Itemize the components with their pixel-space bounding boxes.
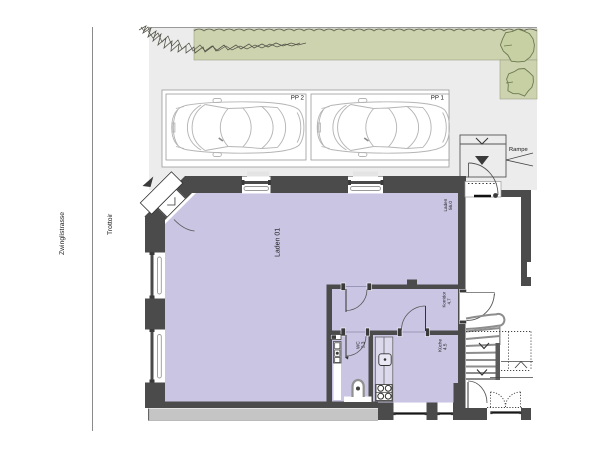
svg-text:4.7: 4.7 <box>447 298 452 305</box>
svg-text:Rampe: Rampe <box>509 147 528 153</box>
svg-text:4.5: 4.5 <box>443 343 448 350</box>
svg-text:PP 2: PP 2 <box>291 95 305 102</box>
svg-text:PP 1: PP 1 <box>431 95 445 102</box>
svg-text:Laden 01: Laden 01 <box>274 228 282 257</box>
svg-text:Trottoir: Trottoir <box>107 213 114 235</box>
svg-text:Zwinglistrasse: Zwinglistrasse <box>59 212 66 255</box>
svg-text:2.3: 2.3 <box>361 341 366 348</box>
svg-text:56.0: 56.0 <box>448 201 453 210</box>
